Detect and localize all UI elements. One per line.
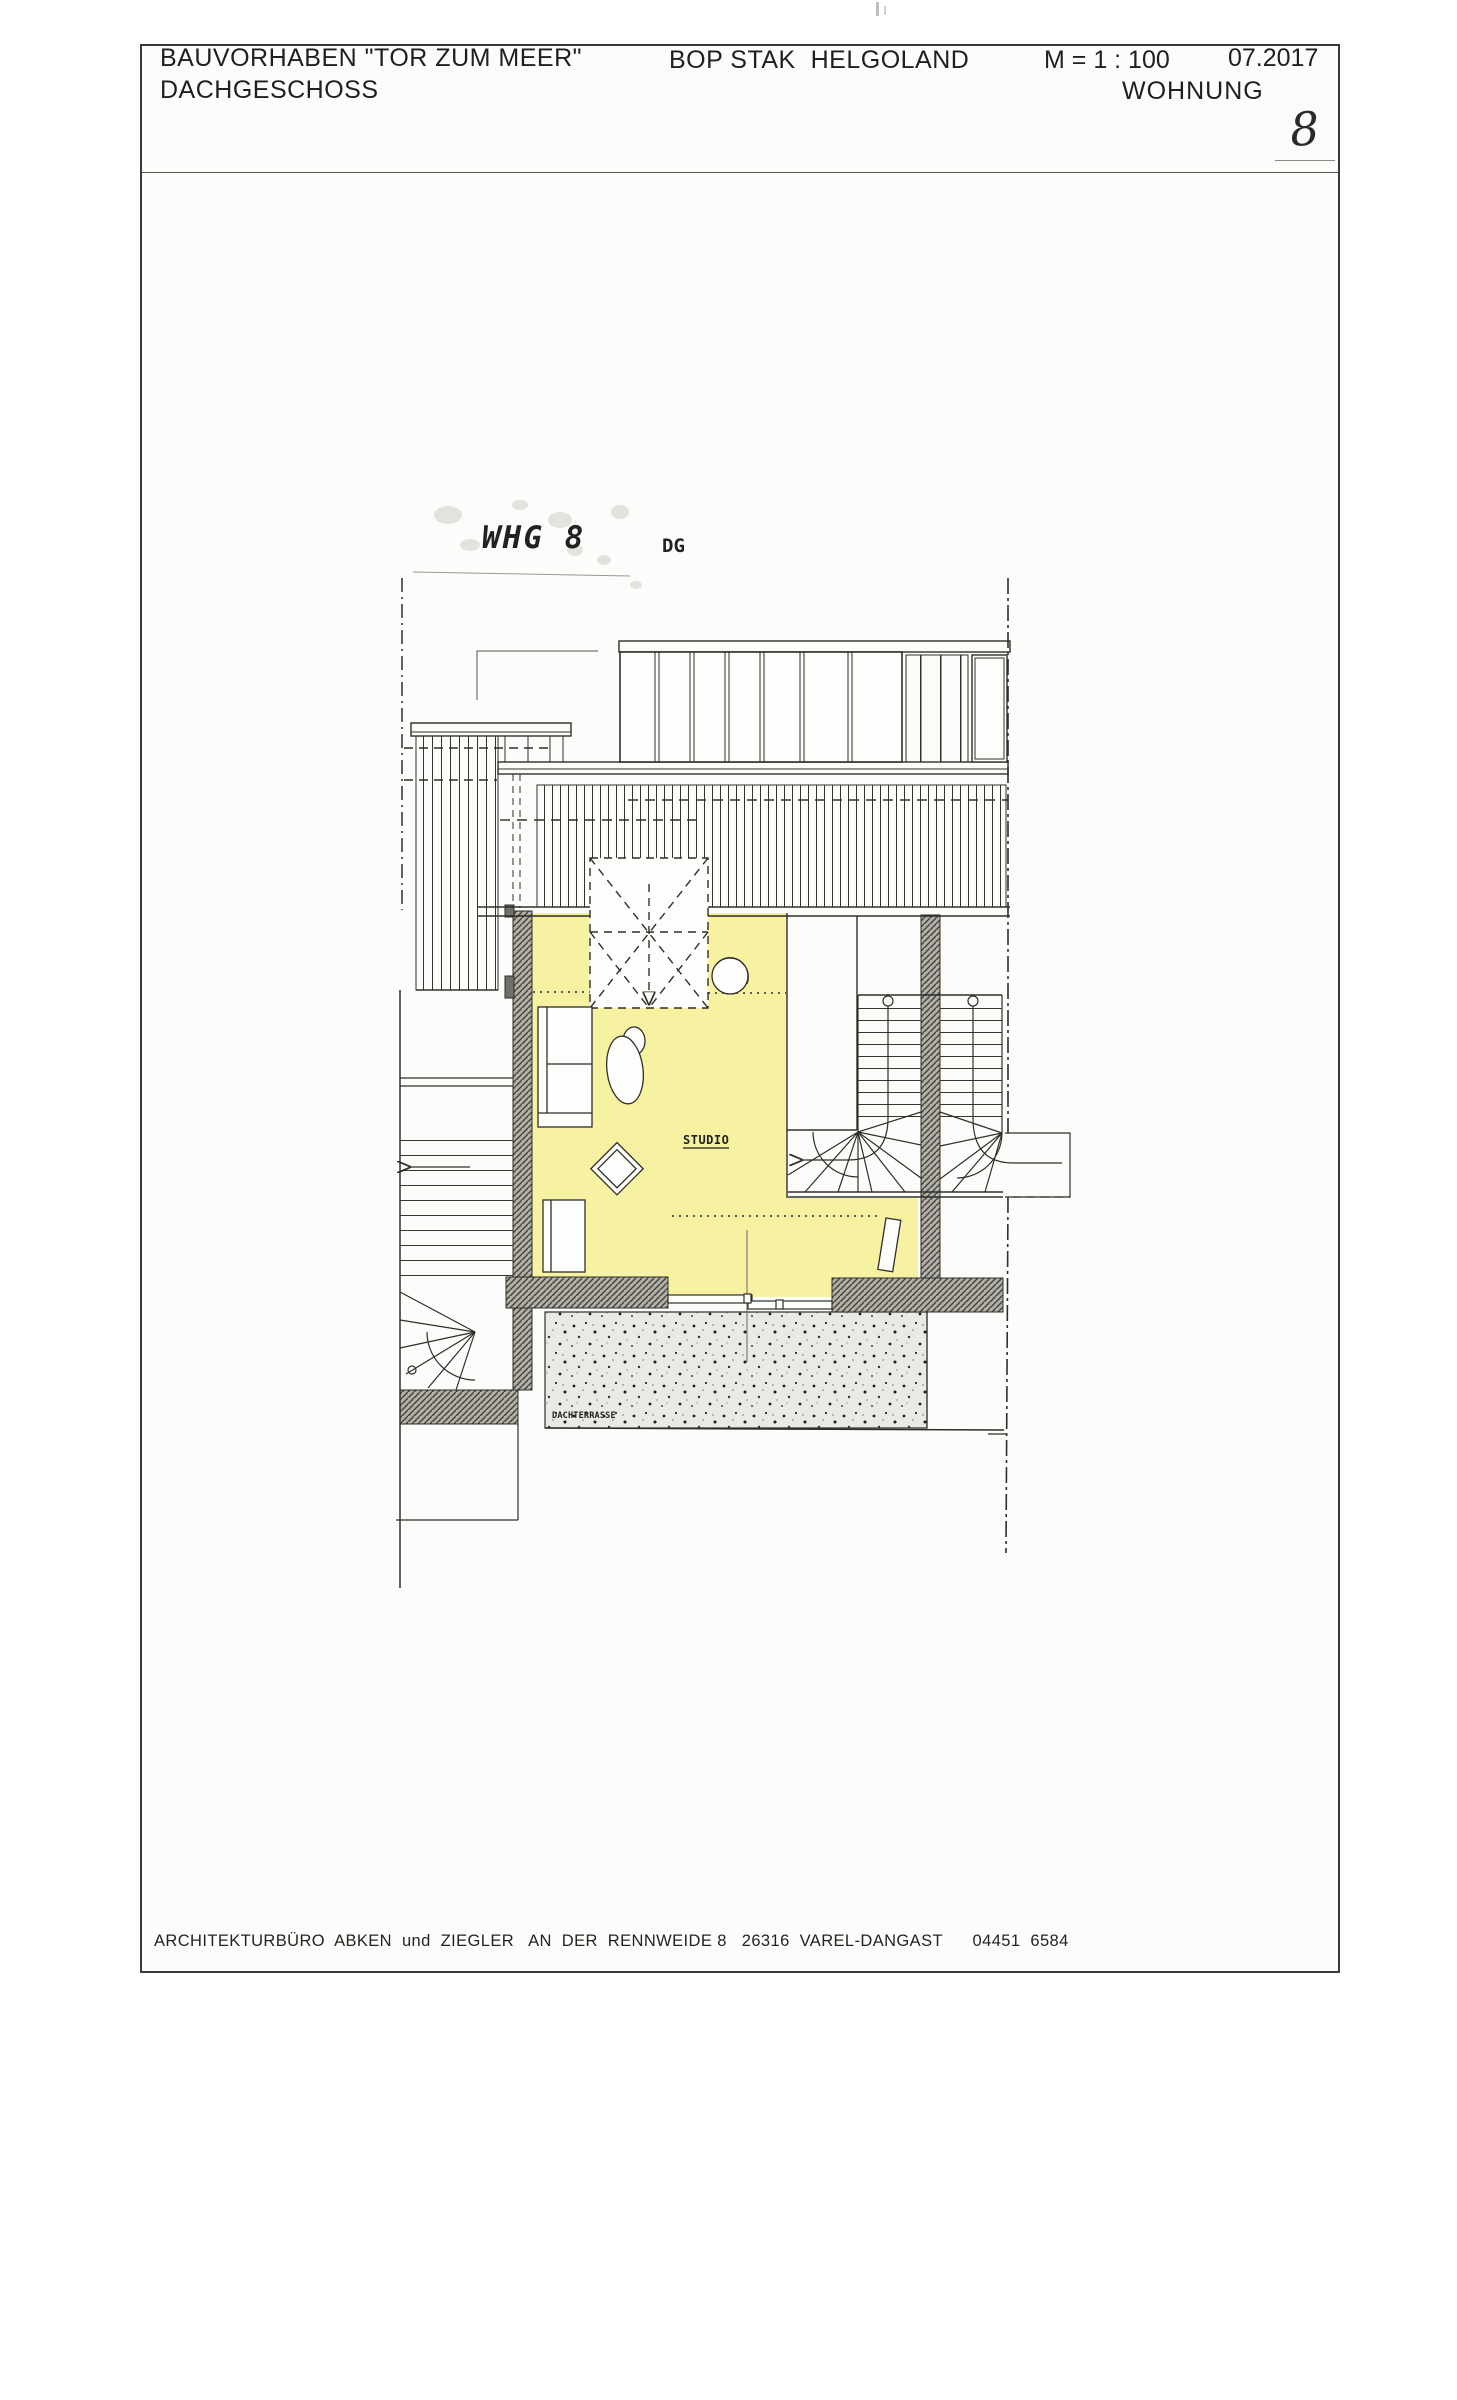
terrace-label: DACHTERRASSE — [552, 1411, 616, 1421]
stair-landing-right — [1005, 1133, 1070, 1197]
scan-smudges — [434, 2, 886, 589]
stair-left — [396, 990, 518, 1588]
scanned-plan-page: BAUVORHABEN "TOR ZUM MEER" DACHGESCHOSS … — [0, 0, 1457, 2400]
sofa — [538, 1007, 592, 1127]
round-chair — [712, 958, 748, 994]
studio-label: STUDIO — [683, 1133, 729, 1148]
roof-hatch-opening — [590, 858, 708, 1008]
winders-left-stair — [400, 1292, 475, 1390]
wardrobe — [543, 1200, 585, 1272]
floor-plan-drawing: WHG 8 DG STUDIO DACHTERRASSE — [0, 0, 1457, 2400]
apartment-label: WHG 8 — [482, 520, 585, 556]
svg-text:STUDIO: STUDIO — [683, 1133, 729, 1147]
floor-code-label: DG — [662, 535, 685, 557]
